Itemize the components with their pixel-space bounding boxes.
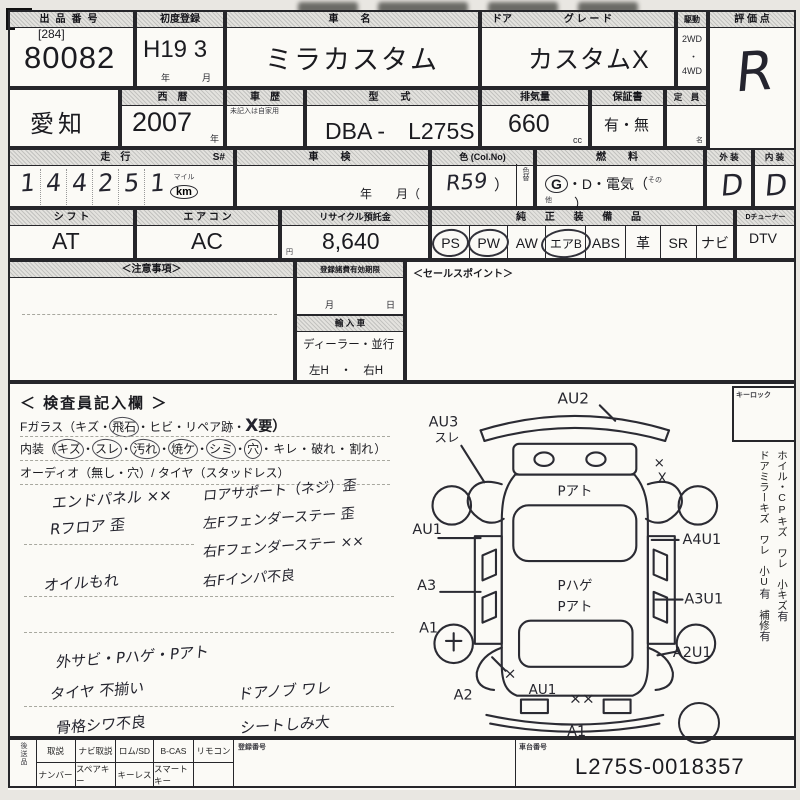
note-right-inner-panel: 右Fインパ不良 xyxy=(203,568,295,588)
note-left-fender-stay: 左Fフェンダーステー 歪 xyxy=(203,508,355,528)
keylock-label: キーロック xyxy=(734,388,794,402)
recycle-fee-unit: 円 xyxy=(286,247,293,257)
dashed-line xyxy=(24,706,394,707)
leader-front-left xyxy=(461,446,484,483)
expiry-import-cell: 登録諸費有効期限 月 日 輸 入 車 ディーラー・並行 左H ・ 右H xyxy=(295,260,405,382)
mileage-digit-boxes: 1 4 4 2 5 1 xyxy=(15,169,170,205)
fuel-cell: 燃 料 G・D・電気（その他） xyxy=(535,148,705,208)
grid-smart-key: スマートキー xyxy=(154,763,194,786)
tuner-value: DTV xyxy=(749,230,777,246)
import-box: 輸 入 車 ディーラー・並行 左H ・ 右H xyxy=(295,314,405,384)
grid-remote: リモコン xyxy=(194,740,234,763)
auction-sheet: 出品番号 [284] 80082 初度登録 H19 3 年 月 車 名 ミラカス… xyxy=(8,10,796,790)
drive-2wd: 2WD xyxy=(682,34,702,44)
history-label: 車 歴 xyxy=(227,90,303,106)
equip-sr: SR xyxy=(661,226,697,260)
dashed-line xyxy=(20,460,390,461)
right-front-wheel xyxy=(679,486,717,524)
lot-number: 80082 xyxy=(24,40,115,76)
damage-rear-panel-xx: ×× xyxy=(569,689,595,707)
km-badge: マイル km xyxy=(170,172,198,200)
car-damage-diagram: AU2 AU3 スレ AU1 A3 A1 × A2 × X A4U1 A3U1 … xyxy=(405,390,735,738)
drive-cell: 駆動 2WD ・ 4WD xyxy=(676,10,708,88)
note-tires-mismatched: タイヤ 不揃い xyxy=(50,680,144,701)
shaken-units: 年 月（ xyxy=(360,185,420,202)
mileage-label: 走 行 xyxy=(100,151,130,164)
equip-leather: 革 xyxy=(626,226,660,260)
damage-right-rear-door: A3U1 xyxy=(684,591,723,607)
warranty-value: 有・無 xyxy=(604,114,649,135)
drive-4wd: 4WD xyxy=(682,66,702,76)
fglass-stone-chip-circled: 飛石 xyxy=(112,420,136,434)
later-items-cell: 後送品 xyxy=(10,740,37,786)
score-cell: 評 価 点 R xyxy=(708,10,796,150)
first-reg-month-unit: 月 xyxy=(202,71,211,84)
right-rear-door-window xyxy=(654,592,667,623)
wheel-note: ホイル・CPキズ ワレ 小キズ有 xyxy=(774,450,790,732)
accessories-grid: 取説 ナビ取説 ロム/SD B-CAS リモコン ナンバー スペアキー キーレス… xyxy=(36,740,234,786)
displacement-value: 660 xyxy=(508,110,550,139)
grid-navi-manual: ナビ取説 xyxy=(76,740,116,763)
damage-left-rear-wheel: A1 xyxy=(419,620,438,636)
aircon-label: エ ア コ ン xyxy=(137,210,278,226)
mileage-digit: 1 xyxy=(145,169,170,205)
damage-left-rear-x: × xyxy=(504,664,517,682)
interior-label: 内 装 xyxy=(755,150,794,166)
prefecture-value: 愛知 xyxy=(30,104,86,139)
car-name-cell: 車 名 ミラカスタム xyxy=(225,10,480,88)
damage-left-rear-door: A3 xyxy=(417,578,436,594)
score-label: 評 価 点 xyxy=(710,12,794,28)
note-seat-stain: シートしみ大 xyxy=(240,714,330,735)
grade-label: グ レ ー ド xyxy=(564,13,612,26)
left-front-fender xyxy=(468,482,504,523)
damage-right-door: A4U1 xyxy=(682,532,721,548)
mirror-note-hand-yes: 有 xyxy=(758,588,771,599)
registration-number-label: 登録番号 xyxy=(234,740,515,754)
import-handle: 左H ・ 右H xyxy=(309,362,383,378)
damage-front-left: AU3 xyxy=(429,415,459,431)
prefecture-cell: 愛知 xyxy=(8,88,120,148)
grid-bcas: B-CAS xyxy=(154,740,194,763)
left-rear-door-window xyxy=(483,592,496,623)
mileage-header: 走 行 S# xyxy=(10,150,233,166)
lot-number-cell: 出品番号 [284] 80082 xyxy=(8,10,135,88)
grade-cell: ドア グ レ ー ド カスタムX xyxy=(480,10,676,88)
right-front-door-window xyxy=(654,550,667,581)
color-paren: ） xyxy=(494,174,509,195)
notice-cell: ＜注意事項＞ xyxy=(8,260,295,382)
equipment-label: 純 正 装 備 品 xyxy=(432,210,733,226)
exterior-cell: 外 装 D xyxy=(705,148,753,208)
mileage-digit: 4 xyxy=(41,169,67,205)
mirror-note: ドアミラーキズ ワレ 小U有 補修有 xyxy=(756,450,772,732)
history-cell: 車 歴 未記入は自家用 xyxy=(225,88,305,148)
fuel-label: 燃 料 xyxy=(537,150,703,166)
damage-front-left-sub: スレ xyxy=(434,430,459,445)
displacement-label: 排気量 xyxy=(482,90,588,106)
year-unit: 年 xyxy=(210,132,219,145)
audio-tire-line: オーディオ（無し・穴）/ タイヤ（スタッドレス） xyxy=(20,464,289,481)
grid-empty xyxy=(194,763,234,786)
equipment-cell: 純 正 装 備 品 PS PW AW エアB ABS 革 SR ナビ xyxy=(430,208,735,260)
sales-point-cell: ＜セールスポイント＞ xyxy=(405,260,796,382)
model-label: 型 式 xyxy=(307,90,478,106)
dashed-line xyxy=(24,544,194,545)
tuner-cell: Dチューナー DTV xyxy=(735,208,796,260)
displacement-unit: cc xyxy=(573,135,582,145)
drive-separator: ・ xyxy=(689,50,698,63)
damage-rear-panel: AU1 xyxy=(529,683,557,698)
front-bumper-inner xyxy=(484,428,665,441)
fglass-line: Fガラス（キズ・飛石・ヒビ・リペア跡・X要） xyxy=(20,416,286,436)
cowl-vent-right xyxy=(586,452,605,465)
right-front-fender xyxy=(646,482,682,523)
fuel-options: ・D・電気（ xyxy=(568,176,648,192)
car-name-label: 車 名 xyxy=(227,12,478,28)
equip-navi: ナビ xyxy=(697,226,733,260)
expiry-label: 登録諸費有効期限 xyxy=(297,262,403,278)
dashed-line xyxy=(20,436,390,437)
repair-note-hand-yes: 有 xyxy=(758,631,771,642)
note-doorknob-crack: ドアノブ ワレ xyxy=(238,680,331,701)
capacity-label: 定 員 xyxy=(667,90,706,106)
model-value: DBA - L275S xyxy=(325,112,475,146)
grid-rom-sd: ロム/SD xyxy=(116,740,154,763)
interior-paint-trace-mid: Pアト xyxy=(558,600,593,615)
expiry-day: 日 xyxy=(386,298,395,311)
grid-manual: 取説 xyxy=(36,740,76,763)
recycle-fee-value: 8,640 xyxy=(322,228,380,255)
rear-bumper xyxy=(486,715,663,725)
wheel-note-hand-yes: 有 xyxy=(776,611,789,622)
tuner-label: Dチューナー xyxy=(737,210,794,226)
inspector-section: ＜ 検査員記入欄 ＞ Fガラス（キズ・飛石・ヒビ・リペア跡・X要） 内装（キズ・… xyxy=(8,382,796,738)
warranty-label: 保証書 xyxy=(592,90,663,106)
bottom-strip: 後送品 取説 ナビ取説 ロム/SD B-CAS リモコン ナンバー スペアキー … xyxy=(8,738,796,788)
fuel-gasoline-circled: G xyxy=(545,175,568,193)
note-right-fender-stay: 右Fフェンダーステー ×× xyxy=(203,536,364,556)
dashed-line xyxy=(24,632,394,633)
year-cell: 西 暦 2007 年 xyxy=(120,88,225,148)
chassis-number-label: 車台番号 xyxy=(515,740,796,754)
shift-label: シ フ ト xyxy=(10,210,133,226)
shaken-label: 車 検 xyxy=(237,150,428,166)
keylock-box: キーロック xyxy=(732,386,796,442)
chassis-number-value: L275S-0018357 xyxy=(575,754,745,780)
fglass-x-mark: X xyxy=(245,416,258,436)
mileage-digit: 5 xyxy=(119,169,145,205)
color-cell: 色 (Col.No) R59 ） 色替 xyxy=(430,148,535,208)
color-value: R59 xyxy=(446,170,487,194)
grid-spare-key: スペアキー xyxy=(76,763,116,786)
equip-pw: PW xyxy=(470,226,508,260)
expiry-month: 月 xyxy=(325,298,334,311)
exterior-label: 外 装 xyxy=(707,150,751,166)
first-registration-cell: 初度登録 H19 3 年 月 xyxy=(135,10,225,88)
mileage-digit: 2 xyxy=(93,169,119,205)
mileage-digit: 4 xyxy=(67,169,93,205)
grade-value: カスタムX xyxy=(528,40,650,76)
mileage-digit: 1 xyxy=(15,169,41,205)
damage-left-door: AU1 xyxy=(412,522,442,538)
damage-right-front-x2: X xyxy=(657,471,666,486)
dashed-line xyxy=(24,596,394,597)
note-oil-leak: オイルもれ xyxy=(44,572,119,593)
import-type: ディーラー・並行 xyxy=(303,336,394,352)
warranty-cell: 保証書 有・無 xyxy=(590,88,665,148)
cowl-vent-left xyxy=(534,452,553,465)
s-label: S# xyxy=(213,151,225,164)
notice-dashed-line xyxy=(22,314,277,315)
import-label: 輸 入 車 xyxy=(297,316,403,332)
interior-paint-peel: Pハゲ xyxy=(558,578,593,594)
shift-cell: シ フ ト AT xyxy=(8,208,135,260)
chassis-number-cell: 車台番号 L275S-0018357 xyxy=(515,740,796,786)
note-frame-wrinkle: 骨格シワ不良 xyxy=(56,714,146,735)
damage-right-rear-corner: A2U1 xyxy=(673,645,712,661)
interior-grade: D xyxy=(765,168,787,202)
recycle-fee-label: リサイクル預託金 xyxy=(282,210,428,226)
equip-ps: PS xyxy=(432,226,470,260)
hood-panel xyxy=(513,444,636,475)
km-unit-label: km xyxy=(170,185,198,199)
first-registration-value: H19 3 xyxy=(143,36,207,64)
capacity-cell: 定 員 名 xyxy=(665,88,708,148)
year-label: 西 暦 xyxy=(122,90,223,106)
windshield xyxy=(513,505,636,561)
note-r-floor: Rフロア 歪 xyxy=(50,516,125,537)
capacity-unit: 名 xyxy=(696,135,703,145)
note-lower-support: ロアサポート（ネジ）歪 xyxy=(203,480,357,500)
tail-light-right xyxy=(604,700,631,713)
notice-label: ＜注意事項＞ xyxy=(10,262,293,278)
registration-number-cell: 登録番号 xyxy=(234,740,516,786)
note-end-panel: エンドパネル ×× xyxy=(52,488,172,509)
damage-front: AU2 xyxy=(558,390,590,407)
note-ext-rust: 外サビ・Pハゲ・Pアト xyxy=(56,646,209,667)
rear-window xyxy=(519,621,632,667)
exterior-grade: D xyxy=(721,168,743,202)
grade-header: ドア グ レ ー ド xyxy=(482,12,674,28)
left-front-wheel xyxy=(433,486,471,524)
history-note: 未記入は自家用 xyxy=(230,106,279,116)
recolor-strip: 色替 xyxy=(516,164,533,208)
aircon-cell: エ ア コ ン AC xyxy=(135,208,280,260)
sales-point-label: ＜セールスポイント＞ xyxy=(413,265,513,280)
later-items-label: 後送品 xyxy=(18,742,28,766)
year-value: 2007 xyxy=(132,107,192,138)
recolor-label: 色替 xyxy=(520,167,530,181)
equip-airbag: エアB xyxy=(546,226,586,260)
model-cell: 型 式 DBA - L275S xyxy=(305,88,480,148)
damage-left-rear-corner: A2 xyxy=(454,688,473,704)
first-registration-label: 初度登録 xyxy=(137,12,223,28)
damage-right-front-x1: × xyxy=(654,456,665,471)
grid-keyless: キーレス xyxy=(116,763,154,786)
lot-bracket: [284] xyxy=(38,27,65,41)
right-vertical-notes: ホイル・CPキズ ワレ 小キズ有 ドアミラーキズ ワレ 小U有 補修有 xyxy=(756,450,790,732)
car-name-value: ミラカスタム xyxy=(265,38,439,77)
inspector-title: ＜ 検査員記入欄 ＞ xyxy=(20,392,168,413)
tail-light-left xyxy=(521,700,548,713)
first-reg-year-unit: 年 xyxy=(161,71,170,84)
left-rear-fender xyxy=(477,648,502,690)
interior-cell: 内 装 D xyxy=(753,148,796,208)
score-value: R xyxy=(736,40,774,103)
mileage-cell: 走 行 S# 1 4 4 2 5 1 マイル km xyxy=(8,148,235,208)
interior-paint-trace-front: Pアト xyxy=(558,485,593,500)
equip-abs: ABS xyxy=(586,226,626,260)
equipment-items: PS PW AW エアB ABS 革 SR ナビ xyxy=(432,226,733,260)
interior-line: 内装（キズ・スレ・汚れ・焼ケ・シミ・穴・キレ・破れ・割れ） xyxy=(20,440,386,457)
mile-unit-label: マイル xyxy=(170,172,198,182)
left-front-door-window xyxy=(483,550,496,581)
lot-number-label: 出品番号 xyxy=(10,12,133,28)
aircon-value: AC xyxy=(191,228,223,255)
recycle-fee-cell: リサイクル預託金 8,640 円 xyxy=(280,208,430,260)
shaken-cell: 車 検 年 月（ xyxy=(235,148,430,208)
grid-plate: ナンバー xyxy=(36,763,76,786)
shift-value: AT xyxy=(52,228,80,255)
displacement-cell: 排気量 660 cc xyxy=(480,88,590,148)
drive-label: 駆動 xyxy=(678,12,706,28)
door-label: ドア xyxy=(492,13,512,26)
damage-rear-bumper: A1 xyxy=(567,724,586,738)
